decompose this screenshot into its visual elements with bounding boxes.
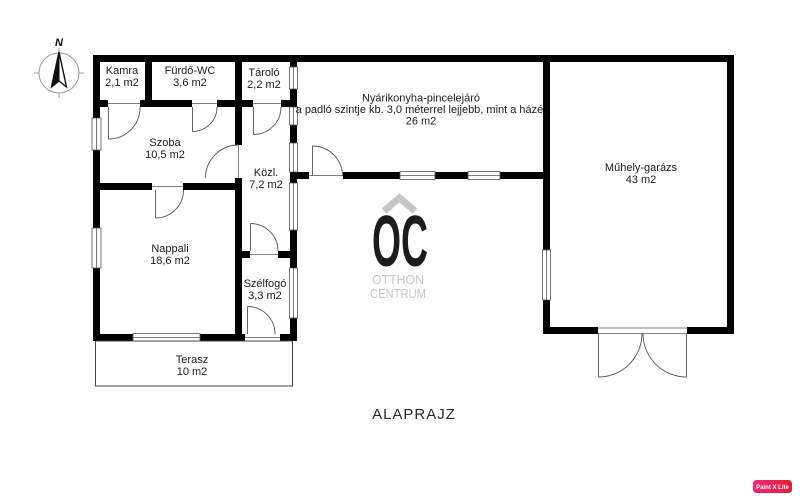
room-label-nyarikonyha-name: Nyárikonyha-pincelejáró (362, 93, 480, 105)
watermark-logo: OC OTTHON CENTRUM (370, 198, 428, 301)
window (400, 172, 435, 180)
window (290, 268, 298, 318)
room-label-tarolo-name: Tároló (248, 67, 279, 79)
garage-door-swing (598, 328, 687, 377)
floorplan-image: N Kamra 2,1 m2 Fürdő-WC 3,6 m2 Tároló 2,… (0, 0, 800, 497)
room-label-szoba-area: 10,5 m2 (145, 149, 185, 161)
window (92, 118, 101, 150)
compass-needle-icon (52, 52, 67, 87)
paint-x-lite-label: Paint X Lite (756, 485, 789, 491)
floorplan-canvas: N Kamra 2,1 m2 Fürdő-WC 3,6 m2 Tároló 2,… (0, 0, 800, 497)
room-label-tarolo-area: 2,2 m2 (247, 79, 281, 91)
door-swing (206, 145, 239, 178)
window (290, 143, 298, 172)
window (543, 250, 551, 300)
room-label-furdo-area: 3,6 m2 (173, 77, 207, 89)
door-swing (108, 104, 140, 140)
room-label-nyarikonyha-area: 26 m2 (406, 116, 437, 128)
room-label-szelfogo-area: 3,3 m2 (248, 290, 282, 302)
room-label-kozl-area: 7,2 m2 (249, 179, 283, 191)
window (290, 183, 298, 230)
door-swing (309, 146, 343, 176)
window (133, 334, 200, 342)
window (290, 67, 298, 89)
room-label-muhely-name: Műhely-garázs (605, 162, 678, 174)
door-swing (152, 187, 184, 219)
door-swing (250, 224, 278, 255)
room-label-nyarikonyha-note: a padló szintje kb. 3,0 méterrel lejjebb… (296, 104, 547, 116)
window (468, 172, 500, 180)
logo-letters: OC (372, 202, 428, 282)
room-label-szelfogo-name: Szélfogó (244, 278, 287, 290)
logo-line1: OTTHON (372, 272, 424, 287)
room-label-terasz-area: 10 m2 (177, 366, 208, 378)
room-label-szoba-name: Szoba (149, 137, 181, 149)
room-label-kamra-area: 2,1 m2 (105, 77, 139, 89)
plan-title: ALAPRAJZ (372, 406, 456, 423)
compass-rose: N (34, 37, 84, 98)
paint-x-lite-badge: Paint X Lite (753, 480, 792, 493)
door-swing (245, 307, 280, 338)
door-swing (253, 104, 281, 135)
room-label-furdo-name: Fürdő-WC (165, 65, 216, 77)
compass-north-label: N (55, 37, 64, 49)
logo-line2: CENTRUM (370, 286, 426, 301)
room-label-kozl-name: Közl. (254, 167, 278, 179)
room-label-nappali-area: 18,6 m2 (150, 255, 190, 267)
room-label-muhely-area: 43 m2 (626, 174, 657, 186)
window (92, 228, 101, 268)
room-label-terasz-name: Terasz (176, 354, 208, 366)
room-label-kamra-name: Kamra (106, 65, 139, 77)
door-swing (192, 104, 217, 132)
room-label-nappali-name: Nappali (151, 243, 188, 255)
